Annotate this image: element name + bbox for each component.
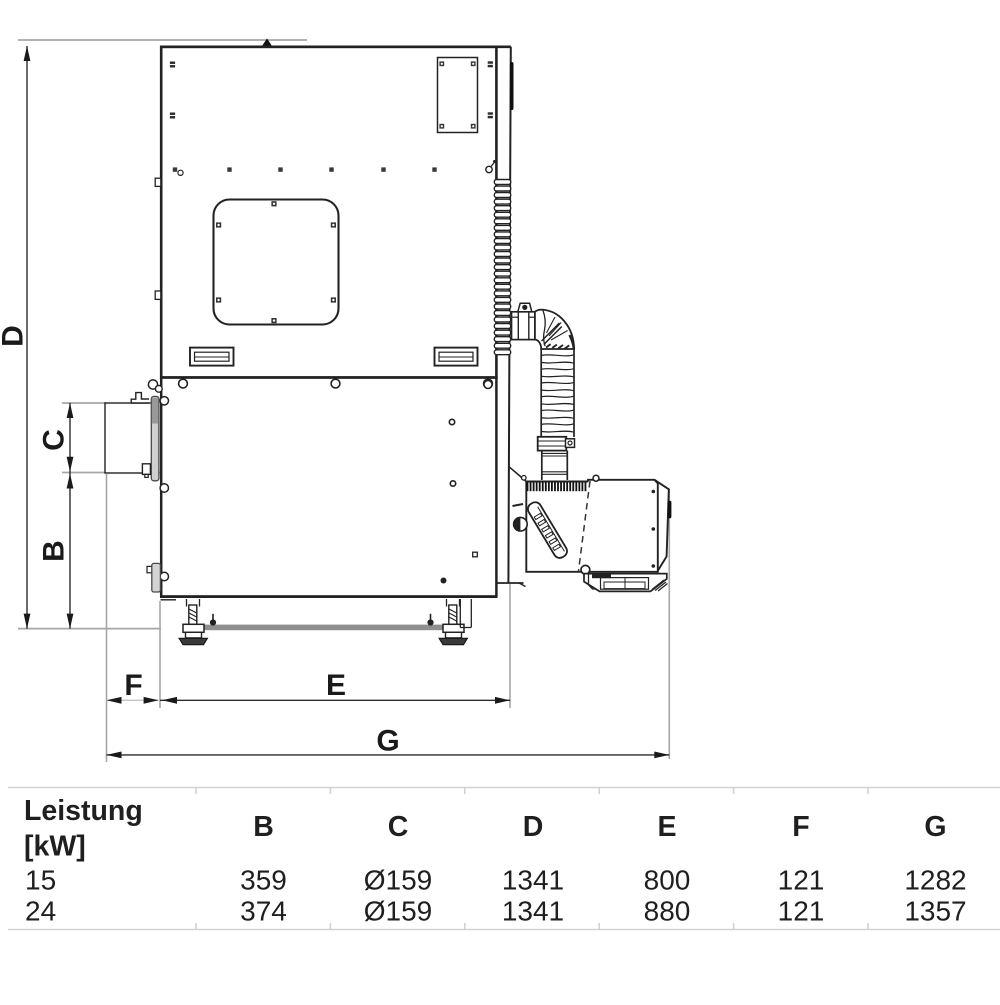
svg-text:800: 800	[644, 865, 691, 896]
svg-text:E: E	[326, 669, 346, 702]
svg-text:1341: 1341	[502, 896, 564, 927]
svg-text:D: D	[523, 811, 544, 843]
svg-text:G: G	[376, 725, 399, 758]
svg-text:121: 121	[778, 865, 825, 896]
svg-text:15: 15	[25, 864, 56, 895]
svg-text:Leistung: Leistung	[24, 795, 143, 827]
svg-text:121: 121	[778, 896, 825, 927]
svg-text:E: E	[657, 811, 676, 843]
svg-text:1341: 1341	[502, 865, 564, 896]
svg-text:1282: 1282	[904, 865, 966, 896]
svg-text:Ø159: Ø159	[364, 896, 433, 927]
svg-text:Ø159: Ø159	[364, 865, 433, 896]
svg-text:B: B	[38, 540, 71, 562]
svg-text:C: C	[388, 811, 409, 843]
svg-text:F: F	[792, 811, 809, 843]
svg-text:359: 359	[240, 865, 287, 896]
svg-text:F: F	[124, 669, 142, 702]
svg-text:[kW]: [kW]	[24, 831, 86, 863]
svg-text:G: G	[924, 811, 946, 843]
svg-text:880: 880	[644, 896, 691, 927]
svg-text:D: D	[0, 325, 30, 347]
svg-text:24: 24	[25, 896, 56, 927]
svg-text:1357: 1357	[904, 896, 966, 927]
svg-text:C: C	[38, 429, 71, 451]
svg-text:B: B	[253, 811, 274, 843]
svg-text:374: 374	[240, 896, 287, 927]
